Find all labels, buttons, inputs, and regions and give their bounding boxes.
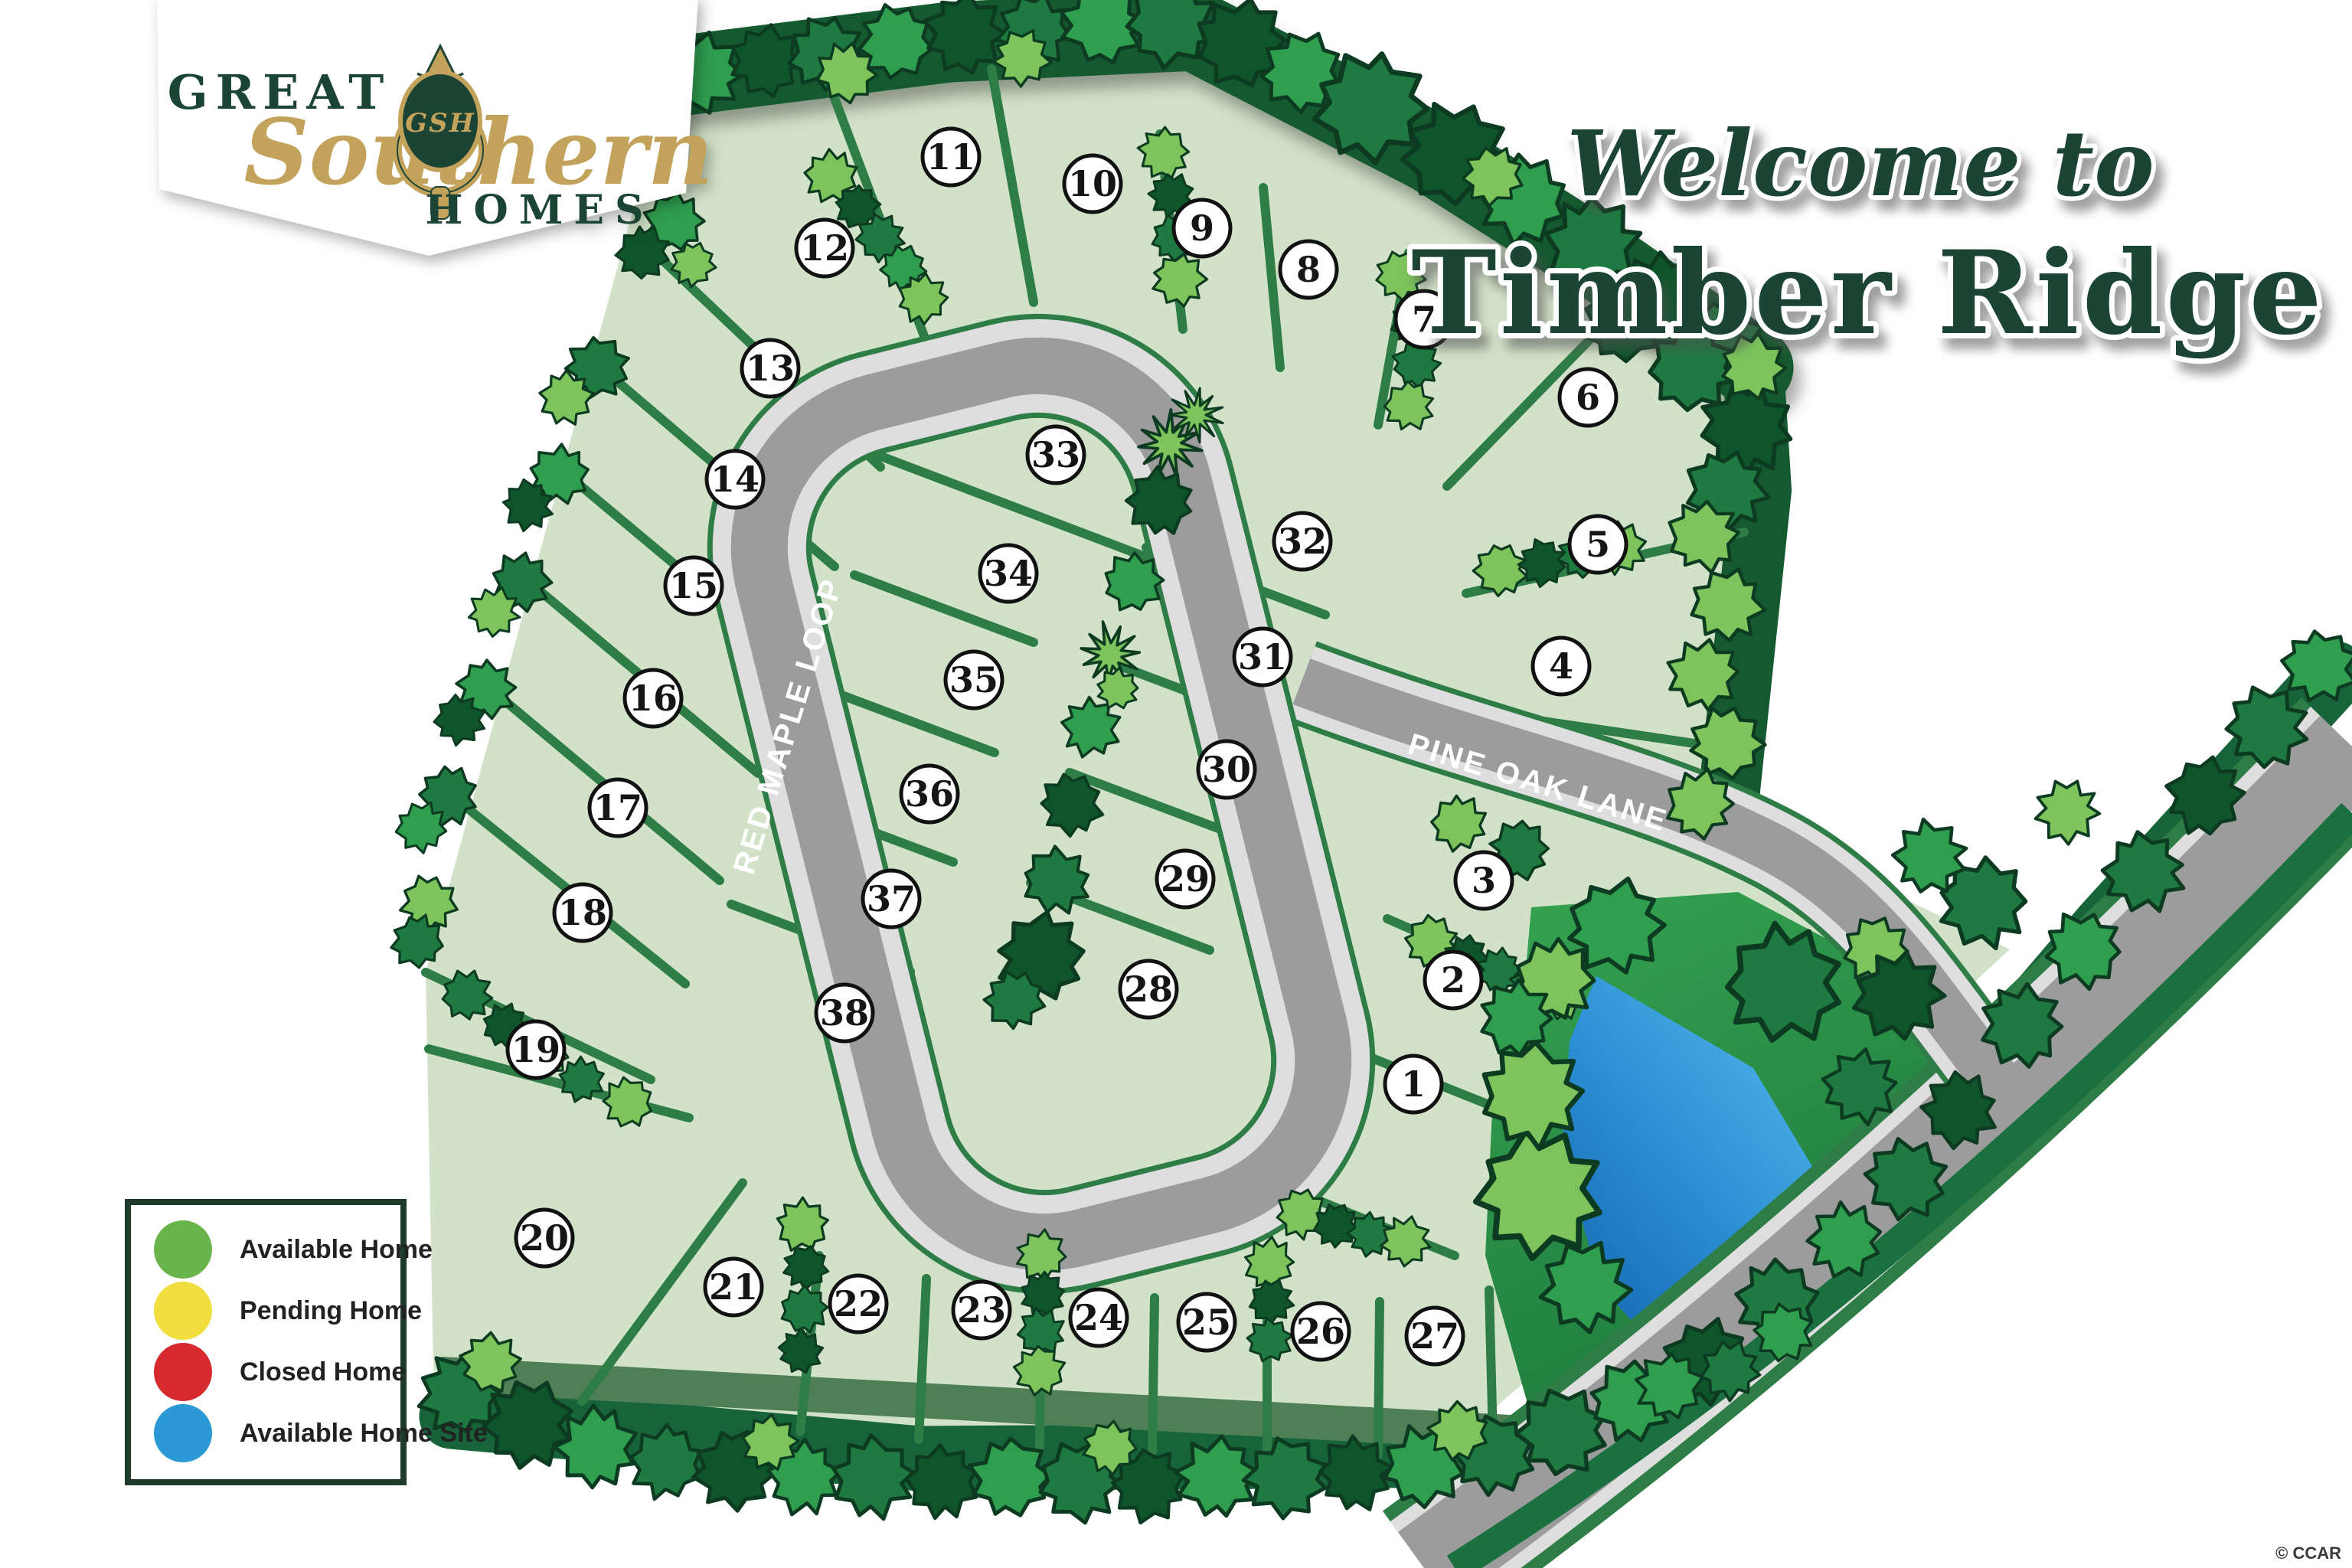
lot-line [1152, 1298, 1155, 1451]
lot-marker: 13 [742, 340, 799, 397]
lot-number: 32 [1278, 521, 1327, 562]
lot-marker: 31 [1234, 629, 1291, 685]
lot-marker: 32 [1274, 513, 1331, 570]
lot-marker: 3 [1455, 852, 1512, 909]
lot-number: 37 [867, 878, 916, 920]
site-plan-page: RED MAPLE LOOPPINE OAK LANESC HIGHWAY 90… [0, 0, 2352, 1568]
lot-number: 3 [1472, 860, 1496, 901]
lot-number: 9 [1190, 207, 1214, 249]
lot-marker: 8 [1280, 241, 1337, 298]
legend-item: Available Home [131, 1219, 400, 1280]
lot-number: 10 [1068, 163, 1117, 204]
lot-number: 25 [1182, 1302, 1231, 1343]
lot-marker: 35 [946, 652, 1002, 708]
lot-number: 14 [710, 459, 759, 500]
lot-number: 15 [669, 565, 718, 606]
lot-number: 24 [1074, 1297, 1123, 1338]
lot-marker: 30 [1198, 741, 1255, 798]
lot-number: 2 [1441, 959, 1465, 1001]
legend-label: Closed Home [240, 1357, 406, 1387]
lot-number: 12 [800, 227, 849, 269]
lot-marker: 28 [1120, 961, 1177, 1018]
lot-number: 16 [629, 678, 678, 719]
lot-marker: 5 [1570, 516, 1626, 573]
lot-number: 19 [511, 1029, 560, 1070]
logo-monogram: GSH [405, 108, 475, 139]
legend-label: Available Home [240, 1235, 433, 1265]
lot-number: 29 [1161, 858, 1210, 900]
lot-marker: 27 [1406, 1308, 1463, 1364]
lot-number: 8 [1296, 249, 1321, 290]
lot-number: 28 [1124, 969, 1173, 1010]
legend-item: Pending Home [131, 1280, 400, 1341]
lot-marker: 14 [707, 451, 763, 508]
legend-item: Closed Home [131, 1341, 400, 1403]
legend-label: Pending Home [240, 1296, 422, 1326]
tree-icon [2026, 770, 2108, 852]
lot-marker: 10 [1064, 155, 1121, 212]
lot-number: 26 [1296, 1311, 1345, 1352]
lot-marker: 29 [1157, 851, 1214, 907]
lot-marker: 16 [625, 670, 681, 727]
lot-marker: 23 [953, 1282, 1010, 1338]
lot-number: 5 [1586, 524, 1610, 565]
lot-marker: 26 [1292, 1303, 1349, 1360]
lot-marker: 34 [980, 545, 1037, 602]
lot-marker: 36 [901, 766, 958, 822]
lot-marker: 22 [830, 1276, 887, 1332]
lot-number: 1 [1401, 1063, 1426, 1105]
legend-color-dot [154, 1404, 212, 1462]
legend-color-dot [154, 1220, 212, 1279]
lot-number: 36 [905, 773, 954, 815]
builder-logo-banner: GREAT Southern GSH HOMES [157, 0, 714, 256]
lot-number: 38 [820, 992, 869, 1034]
lot-marker: 15 [665, 557, 722, 614]
lot-number: 22 [834, 1283, 883, 1325]
lot-number: 11 [926, 136, 975, 178]
lot-marker: 38 [816, 985, 873, 1041]
legend-label: Available Home Site [240, 1419, 488, 1449]
lot-marker: 12 [796, 220, 853, 276]
lot-number: 21 [709, 1266, 758, 1308]
lot-number: 4 [1549, 645, 1573, 687]
lot-marker: 24 [1070, 1289, 1127, 1346]
lot-marker: 9 [1174, 200, 1230, 256]
lot-marker: 17 [590, 779, 646, 836]
lot-marker: 1 [1385, 1056, 1442, 1112]
lot-number: 13 [746, 348, 795, 389]
lot-marker: 20 [516, 1210, 573, 1266]
legend: Available HomePending HomeClosed HomeAva… [125, 1199, 407, 1485]
lot-marker: 18 [554, 884, 611, 941]
lot-number: 20 [520, 1217, 569, 1259]
copyright-note: © CCAR [2275, 1543, 2341, 1563]
map-title: Welcome to Timber Ridge [1411, 110, 2325, 361]
lot-marker: 2 [1425, 952, 1481, 1008]
lot-marker: 11 [923, 129, 979, 185]
lot-marker: 4 [1533, 638, 1589, 694]
lot-number: 30 [1202, 749, 1251, 790]
lot-number: 34 [984, 553, 1033, 594]
legend-color-dot [154, 1282, 212, 1340]
lot-number: 17 [593, 787, 642, 828]
lot-number: 27 [1410, 1315, 1459, 1357]
lot-marker: 19 [508, 1021, 564, 1078]
legend-item: Available Home Site [131, 1403, 400, 1464]
lot-number: 31 [1238, 636, 1287, 678]
title-community-name: Timber Ridge [1411, 226, 2325, 361]
lot-marker: 25 [1178, 1294, 1235, 1351]
logo-homes: HOMES [425, 187, 654, 234]
lot-marker: 37 [863, 871, 920, 927]
lot-number: 33 [1031, 434, 1080, 475]
lot-number: 6 [1576, 377, 1600, 418]
lot-marker: 6 [1560, 369, 1616, 426]
lot-number: 18 [558, 892, 607, 933]
lot-number: 23 [957, 1289, 1006, 1331]
lot-line [1378, 1302, 1380, 1455]
legend-color-dot [154, 1343, 212, 1401]
lot-marker: 21 [705, 1259, 762, 1315]
title-welcome: Welcome to [1566, 110, 2154, 217]
lot-number: 35 [949, 659, 998, 701]
lot-marker: 33 [1027, 426, 1084, 483]
